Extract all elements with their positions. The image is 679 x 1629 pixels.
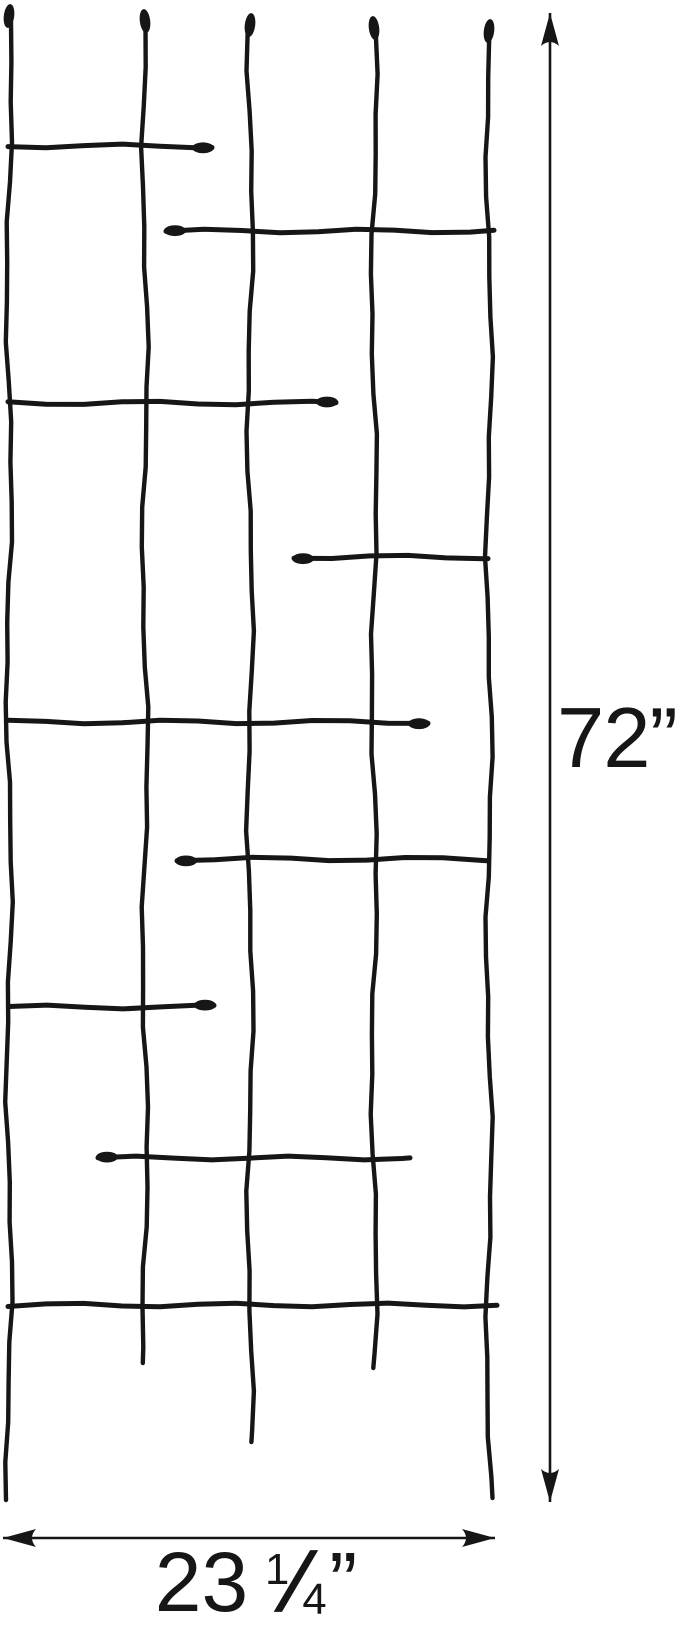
bar-end-bud: [408, 718, 430, 729]
wire-tip-bud: [482, 18, 495, 43]
wire-tip-bud: [2, 3, 15, 28]
arrowhead-up-icon: [541, 13, 559, 46]
vertical-wire: [371, 34, 378, 1368]
width-value-whole: 23: [155, 1535, 248, 1629]
vertical-wire: [246, 31, 254, 1442]
bar-end-bud: [192, 142, 214, 153]
bar-end-bud: [292, 553, 314, 564]
vertical-wire: [485, 37, 493, 1498]
width-unit-mark: ”: [329, 1535, 357, 1629]
bar-end-bud: [194, 1000, 216, 1011]
horizontal-bar: [294, 555, 488, 558]
bar-end-bud: [96, 1152, 118, 1163]
bar-end-bud: [164, 225, 186, 236]
width-value-fraction: 1/4: [265, 1535, 327, 1629]
horizontal-bar: [177, 857, 487, 861]
horizontal-bar: [9, 1005, 214, 1009]
horizontal-bar: [8, 720, 428, 724]
wire-tip-bud: [243, 12, 256, 37]
wire-tip-bud: [367, 15, 380, 40]
horizontal-bar: [8, 401, 336, 404]
horizontal-bar: [8, 1303, 497, 1307]
wire-tip-bud: [138, 8, 151, 33]
trellis-diagram: 72” 231/4”: [0, 0, 679, 1616]
horizontal-bar: [8, 144, 212, 148]
bar-end-bud: [316, 397, 338, 408]
width-dimension-label: 231/4”: [0, 1540, 512, 1624]
arrowhead-down-icon: [541, 1469, 559, 1502]
vertical-wire: [141, 27, 149, 1363]
height-dimension-label: 72”: [557, 696, 677, 781]
bar-end-bud: [175, 855, 197, 866]
vertical-wire: [5, 22, 13, 1500]
horizontal-bar: [166, 229, 494, 233]
trellis-drawing: [0, 0, 679, 1616]
